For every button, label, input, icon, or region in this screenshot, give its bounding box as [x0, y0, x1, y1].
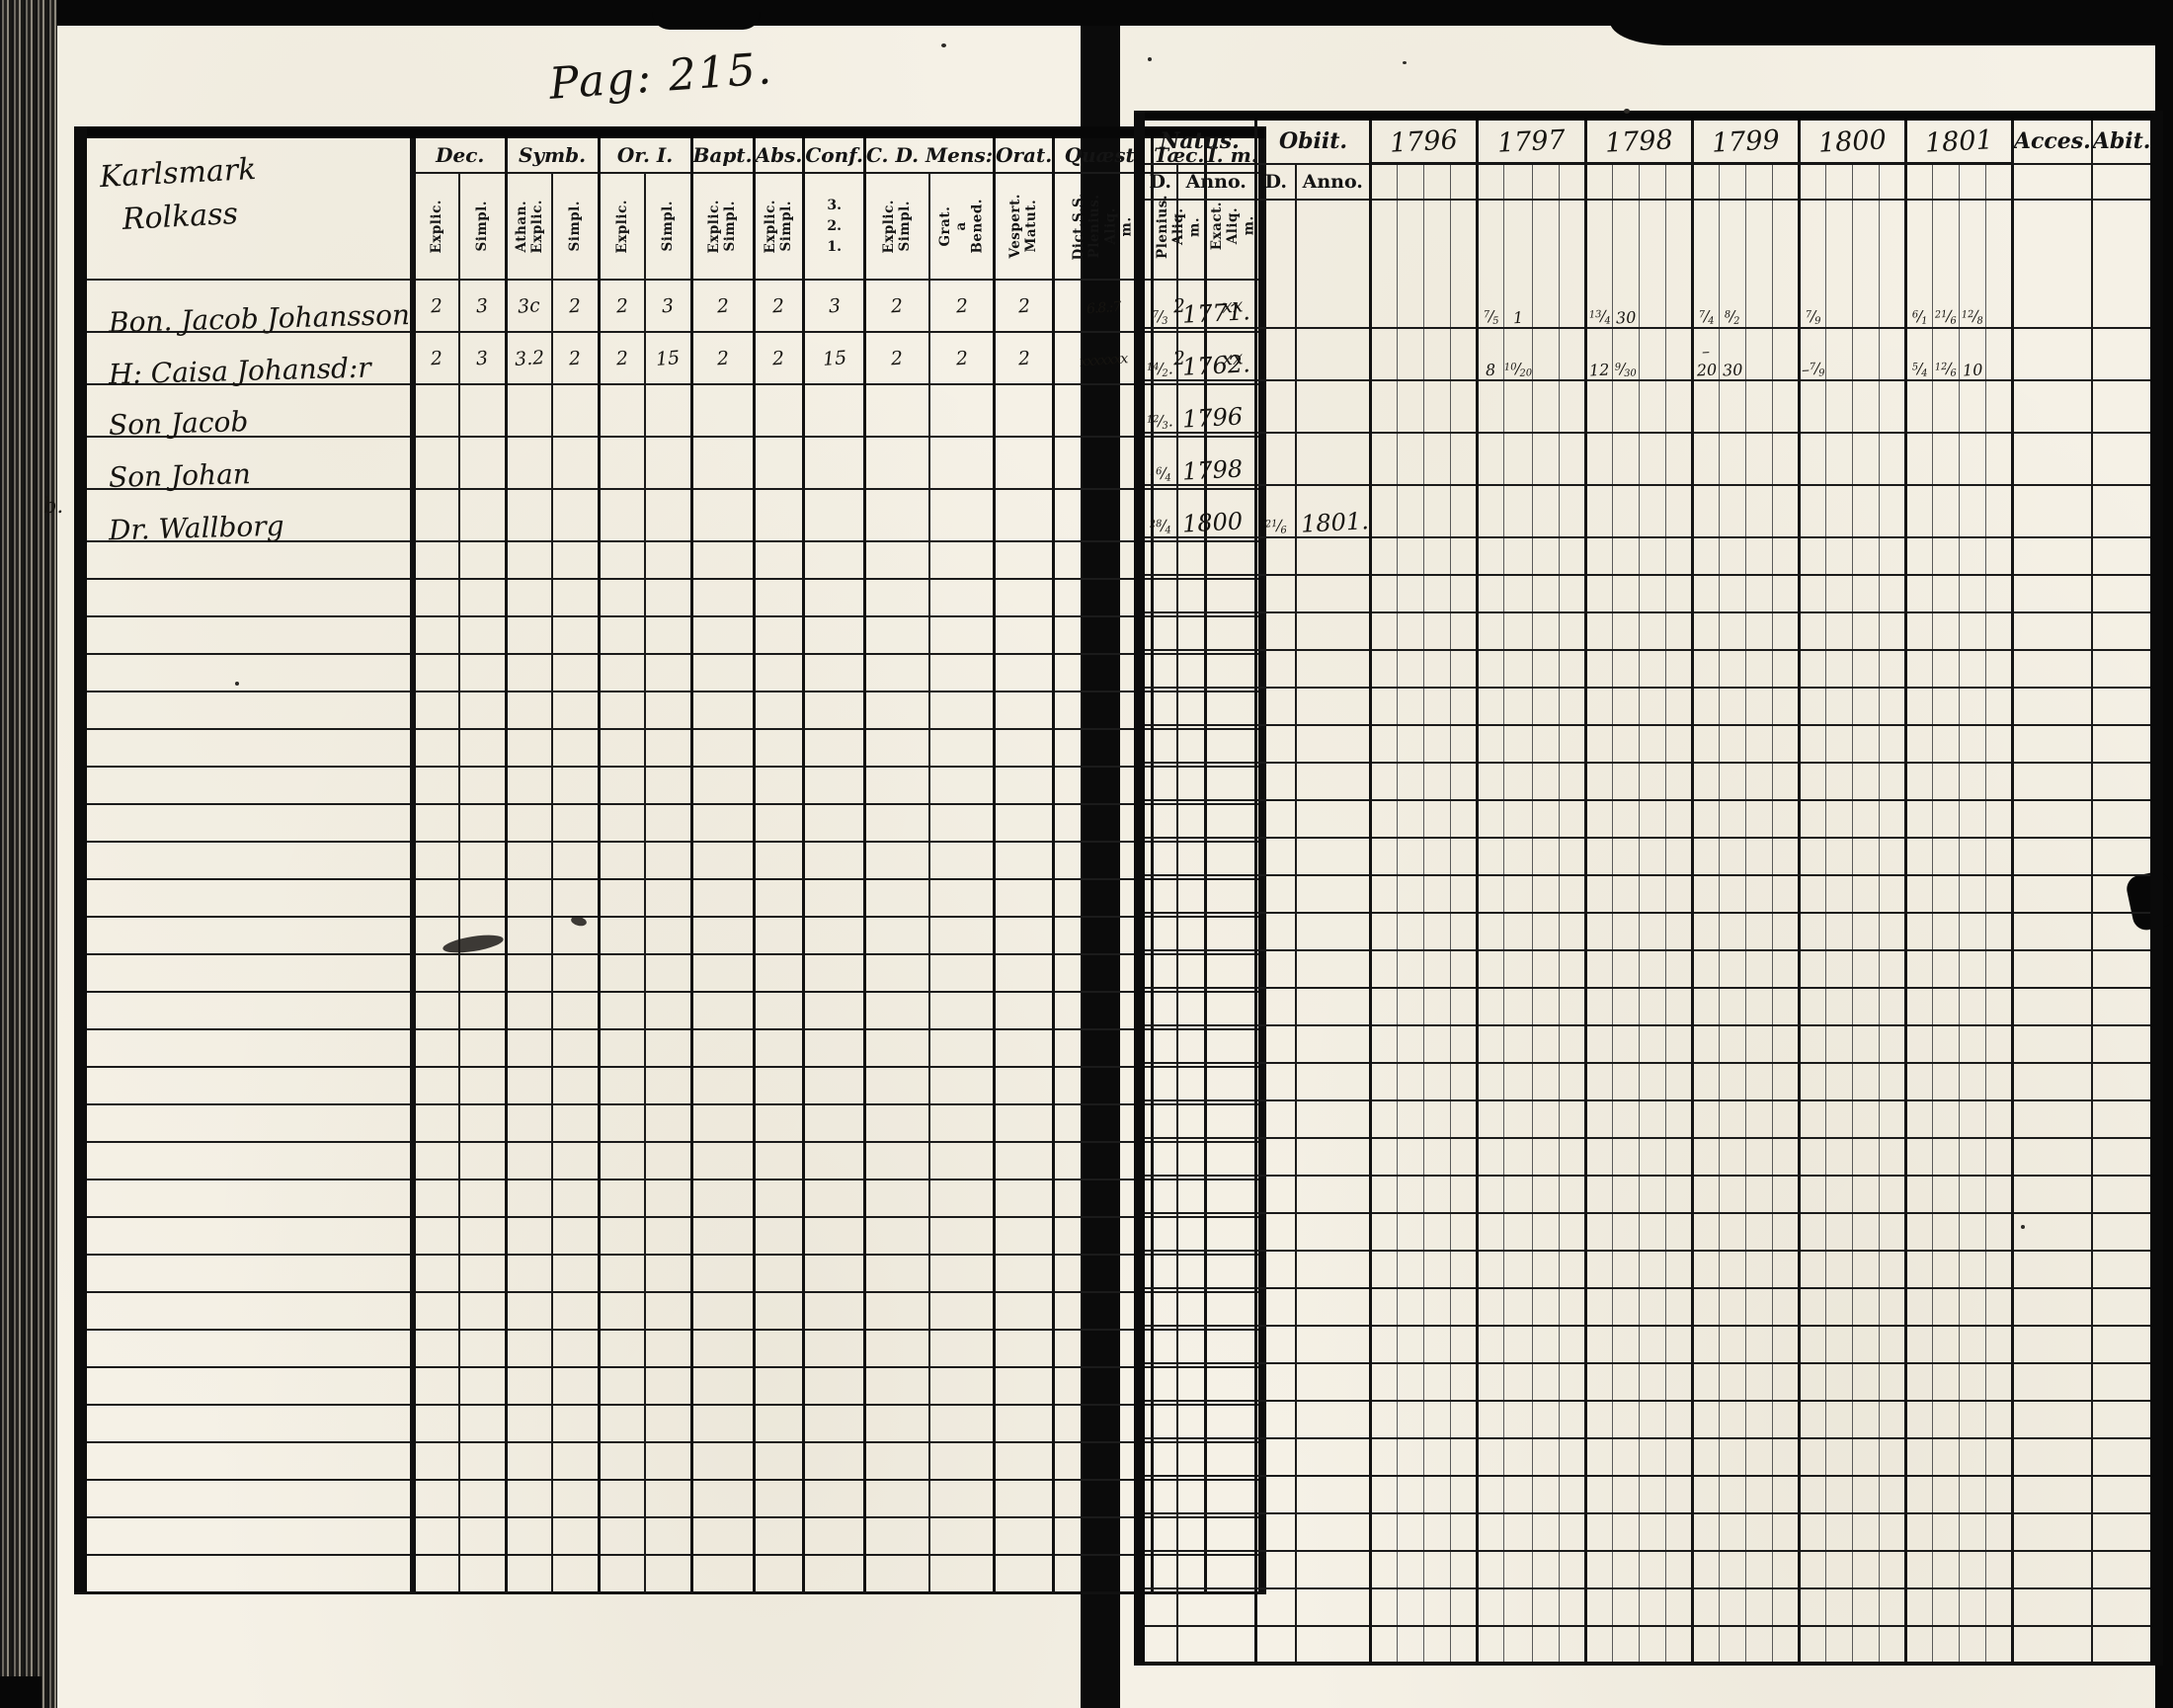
ledger-cell	[691, 437, 754, 489]
ledger-cell	[645, 1179, 691, 1217]
communion-mark-cell	[1585, 988, 1612, 1025]
communion-mark-cell	[1879, 988, 1905, 1025]
column-subheader: Explic. Simpl.	[754, 173, 804, 280]
ledger-cell	[599, 992, 645, 1029]
communion-mark-cell	[1852, 485, 1879, 537]
obiit-year-cell	[1296, 1176, 1371, 1213]
ledger-cell	[995, 842, 1054, 879]
ledger-cell	[552, 1029, 599, 1067]
ledger-row	[1140, 1213, 2157, 1251]
communion-mark-cell	[1532, 1213, 1559, 1251]
communion-mark-cell	[1959, 1438, 1985, 1476]
ledger-cell	[645, 1480, 691, 1517]
communion-mark-cell	[1852, 537, 1879, 575]
communion-mark-cell	[1959, 433, 1985, 485]
communion-mark-cell	[1959, 913, 1985, 950]
communion-mark-cell	[1504, 1100, 1533, 1138]
ledger-cell	[413, 879, 459, 917]
communion-mark-cell	[1451, 433, 1478, 485]
book-spine-edge	[0, 0, 57, 1708]
communion-mark-cell	[1532, 537, 1559, 575]
ledger-cell	[929, 992, 995, 1029]
person-name-cell	[81, 917, 414, 954]
year-tick-cell	[1852, 164, 1879, 200]
obiit-day-cell	[1256, 1326, 1296, 1363]
communion-mark-cell	[1772, 800, 1799, 838]
ledger-cell	[754, 879, 804, 917]
communion-mark-cell	[1424, 1100, 1451, 1138]
ledger-cell	[645, 541, 691, 579]
ledger-cell	[413, 729, 459, 767]
communion-mark-cell	[1799, 950, 1825, 988]
ledger-cell	[506, 1330, 552, 1367]
communion-mark-cell	[1959, 1588, 1985, 1626]
communion-mark-cell: 7⁄5	[1478, 200, 1504, 328]
acces-cell	[2012, 913, 2091, 950]
communion-mark-cell: 9⁄30	[1612, 328, 1639, 380]
communion-mark-cell	[1772, 1138, 1799, 1176]
person-name-cell: Son Johan	[81, 437, 414, 489]
communion-mark-cell	[1772, 838, 1799, 875]
ledger-cell	[506, 489, 552, 541]
person-name-cell	[81, 992, 414, 1029]
ledger-cell	[754, 691, 804, 729]
communion-mark-cell	[1719, 575, 1745, 612]
obiit-year-cell	[1296, 575, 1371, 612]
communion-mark-cell	[1932, 380, 1959, 433]
ledger-row	[81, 917, 1262, 954]
ledger-cell	[459, 489, 506, 541]
communion-mark-cell	[1692, 688, 1719, 725]
communion-mark-cell	[1585, 1213, 1612, 1251]
communion-mark-cell	[1905, 1363, 1932, 1401]
acces-cell	[2012, 763, 2091, 800]
ledger-cell	[645, 804, 691, 842]
communion-mark-cell	[1852, 380, 1879, 433]
communion-mark-cell	[1745, 1401, 1772, 1438]
communion-mark-cell	[1745, 1138, 1772, 1176]
communion-mark-cell	[1398, 433, 1424, 485]
communion-mark-cell	[1424, 1251, 1451, 1288]
communion-mark-cell	[1772, 1100, 1799, 1138]
ledger-cell	[506, 1405, 552, 1442]
communion-mark-cell	[1451, 1100, 1478, 1138]
ledger-cell	[804, 1367, 865, 1405]
communion-mark-cell	[1879, 1326, 1905, 1363]
ledger-cell	[754, 767, 804, 804]
ledger-cell	[645, 1104, 691, 1142]
ledger-cell	[645, 1292, 691, 1330]
communion-mark-cell	[1985, 433, 2012, 485]
communion-mark-cell	[1825, 800, 1852, 838]
abit-cell	[2092, 200, 2157, 328]
communion-mark-cell	[1719, 380, 1745, 433]
communion-mark-cell	[1639, 1513, 1665, 1551]
communion-mark-cell	[1719, 838, 1745, 875]
abit-cell	[2092, 485, 2157, 537]
communion-mark-cell: 7⁄4	[1692, 200, 1719, 328]
communion-mark-cell	[1504, 575, 1533, 612]
ledger-cell: 2	[995, 332, 1054, 384]
obiit-year-cell	[1296, 612, 1371, 650]
ledger-cell	[645, 1255, 691, 1292]
communion-mark-cell	[1879, 688, 1905, 725]
ledger-cell	[645, 654, 691, 691]
ledger-cell	[459, 992, 506, 1029]
ledger-cell	[929, 1292, 995, 1330]
natus-year-cell	[1177, 988, 1256, 1025]
obiit-day-cell	[1256, 800, 1296, 838]
communion-mark-cell	[1532, 1176, 1559, 1213]
communion-mark-cell	[1398, 1626, 1424, 1664]
communion-mark-cell	[1985, 838, 2012, 875]
obiit-day-cell	[1256, 1288, 1296, 1326]
communion-mark-cell	[1639, 1176, 1665, 1213]
communion-mark-cell	[1451, 763, 1478, 800]
ledger-cell	[599, 1330, 645, 1367]
communion-mark-cell	[1451, 380, 1478, 433]
communion-mark-cell	[1799, 1326, 1825, 1363]
communion-mark-cell	[1692, 763, 1719, 800]
ledger-cell: 2	[929, 280, 995, 332]
ledger-cell	[459, 767, 506, 804]
ledger-cell	[413, 842, 459, 879]
ledger-cell: 3.2	[506, 332, 552, 384]
ledger-cell	[599, 954, 645, 992]
communion-mark-cell	[1959, 1626, 1985, 1664]
communion-mark-cell	[1879, 537, 1905, 575]
communion-mark-cell	[1905, 575, 1932, 612]
obiit-year-cell	[1296, 838, 1371, 875]
ledger-cell	[552, 1330, 599, 1367]
acces-cell	[2012, 1626, 2091, 1664]
ledger-cell	[929, 1142, 995, 1179]
communion-mark-cell	[1879, 800, 1905, 838]
communion-mark-cell	[1504, 725, 1533, 763]
ledger-cell	[864, 729, 929, 767]
communion-mark-cell	[1745, 1363, 1772, 1401]
ledger-cell	[552, 541, 599, 579]
ledger-cell	[506, 767, 552, 804]
ledger-cell	[754, 842, 804, 879]
ink-speck	[235, 682, 239, 686]
ledger-cell	[864, 1555, 929, 1592]
ledger-cell	[929, 691, 995, 729]
communion-mark-cell	[1959, 688, 1985, 725]
communion-mark-cell	[1504, 1513, 1533, 1551]
communion-mark-cell	[1478, 1176, 1504, 1213]
ledger-cell	[413, 489, 459, 541]
obiit-year-cell	[1296, 1438, 1371, 1476]
abit-cell	[2092, 763, 2157, 800]
abit-cell	[2092, 1025, 2157, 1063]
communion-mark-cell	[1745, 875, 1772, 913]
communion-mark-cell	[1879, 875, 1905, 913]
obiit-year-cell	[1296, 950, 1371, 988]
ledger-cell	[413, 954, 459, 992]
communion-mark-cell	[1825, 1401, 1852, 1438]
communion-mark-cell	[1559, 612, 1585, 650]
communion-mark-cell	[1719, 1100, 1745, 1138]
communion-mark-cell	[1879, 1213, 1905, 1251]
ledger-cell: 2	[864, 332, 929, 384]
abit-cell	[2092, 1476, 2157, 1513]
communion-mark-cell	[1612, 688, 1639, 725]
abit-cell	[2092, 875, 2157, 913]
abit-cell	[2092, 1176, 2157, 1213]
person-name-cell: Bon. Jacob Johansson	[81, 280, 414, 332]
ledger-cell	[599, 1367, 645, 1405]
ledger-cell	[929, 1179, 995, 1217]
abit-cell	[2092, 1438, 2157, 1476]
communion-mark-cell	[1799, 875, 1825, 913]
column-subheader: Explic. Simpl.	[864, 173, 929, 280]
communion-mark-cell	[1424, 800, 1451, 838]
communion-mark-cell	[1799, 1025, 1825, 1063]
ledger-cell	[804, 541, 865, 579]
ledger-row: 12⁄3.1796	[1140, 380, 2157, 433]
acces-cell	[2012, 725, 2091, 763]
abit-cell	[2092, 1588, 2157, 1626]
acces-cell	[2012, 1213, 2091, 1251]
ledger-cell	[995, 804, 1054, 842]
ledger-row	[81, 1292, 1262, 1330]
ledger-cell	[864, 1367, 929, 1405]
communion-mark-cell	[1985, 1176, 2012, 1213]
communion-mark-cell: 10	[1959, 328, 1985, 380]
communion-mark-cell	[1959, 725, 1985, 763]
communion-mark-cell	[1504, 485, 1533, 537]
communion-mark-cell	[1639, 537, 1665, 575]
natus-year-cell	[1177, 1025, 1256, 1063]
communion-mark-cell	[1398, 612, 1424, 650]
natus-day-cell	[1140, 1401, 1177, 1438]
communion-mark-cell	[1612, 575, 1639, 612]
acces-cell	[2012, 380, 2091, 433]
ledger-cell	[864, 691, 929, 729]
communion-mark-cell	[1451, 1401, 1478, 1438]
household-name-header: KarlsmarkRolkass	[81, 132, 414, 280]
ledger-cell	[804, 917, 865, 954]
communion-mark-cell	[1478, 763, 1504, 800]
year-tick-cell	[1398, 164, 1424, 200]
communion-mark-cell	[1905, 950, 1932, 988]
ledger-cell	[599, 1029, 645, 1067]
communion-mark-cell: 21⁄6	[1932, 200, 1959, 328]
ledger-cell	[645, 1367, 691, 1405]
communion-mark-cell	[1692, 433, 1719, 485]
obiit-year-cell	[1296, 688, 1371, 725]
ledger-cell	[929, 1367, 995, 1405]
ledger-row	[81, 879, 1262, 917]
ledger-cell	[754, 1405, 804, 1442]
obiit-year-cell: 1801.	[1296, 485, 1371, 537]
ledger-cell	[804, 616, 865, 654]
communion-mark-cell	[1398, 1100, 1424, 1138]
communion-mark-cell	[1665, 1551, 1692, 1588]
communion-mark-cell	[1612, 1025, 1639, 1063]
ledger-cell	[459, 879, 506, 917]
communion-mark-cell	[1959, 875, 1985, 913]
obiit-day-cell	[1256, 1025, 1296, 1063]
communion-mark-cell	[1692, 800, 1719, 838]
communion-mark-cell	[1799, 650, 1825, 688]
communion-mark-cell	[1398, 875, 1424, 913]
communion-mark-cell	[1504, 650, 1533, 688]
abit-cell	[2092, 1626, 2157, 1664]
ledger-row	[1140, 838, 2157, 875]
communion-mark-cell	[1852, 875, 1879, 913]
ledger-row	[81, 1367, 1262, 1405]
communion-mark-cell	[1959, 650, 1985, 688]
communion-mark-cell	[1451, 1326, 1478, 1363]
communion-mark-cell	[1905, 875, 1932, 913]
communion-mark-cell	[1799, 913, 1825, 950]
ledger-cell	[599, 541, 645, 579]
ledger-cell	[506, 541, 552, 579]
ledger-cell	[929, 1104, 995, 1142]
ledger-cell	[864, 1517, 929, 1555]
communion-mark-cell	[1799, 1063, 1825, 1100]
natus-year-cell	[1177, 763, 1256, 800]
ledger-row	[81, 729, 1262, 767]
acces-cell	[2012, 1100, 2091, 1138]
communion-mark-cell	[1905, 1513, 1932, 1551]
ledger-cell	[552, 1067, 599, 1104]
communion-mark-cell	[1959, 950, 1985, 988]
communion-mark-cell	[1665, 485, 1692, 537]
ledger-cell	[552, 654, 599, 691]
communion-mark-cell	[1825, 1100, 1852, 1138]
column-subheader: Explic.	[599, 173, 645, 280]
ledger-row	[1140, 875, 2157, 913]
communion-mark-cell	[1639, 875, 1665, 913]
ledger-cell	[552, 1442, 599, 1480]
communion-mark-cell	[1905, 1476, 1932, 1513]
ledger-row	[1140, 913, 2157, 950]
ledger-cell	[864, 1442, 929, 1480]
natus-day-cell	[1140, 1551, 1177, 1588]
ledger-cell	[506, 954, 552, 992]
communion-mark-cell	[1825, 1363, 1852, 1401]
obiit-day-cell	[1256, 1513, 1296, 1551]
communion-mark-cell	[1398, 1213, 1424, 1251]
ledger-row	[1140, 688, 2157, 725]
ledger-cell	[691, 616, 754, 654]
communion-mark-cell	[1371, 1176, 1398, 1213]
communion-mark-cell	[1719, 688, 1745, 725]
communion-mark-cell	[1745, 575, 1772, 612]
communion-mark-cell	[1424, 913, 1451, 950]
natus-day-cell	[1140, 650, 1177, 688]
communion-mark-cell	[1559, 1025, 1585, 1063]
ledger-cell	[995, 1517, 1054, 1555]
ledger-row	[1140, 1401, 2157, 1438]
ledger-cell	[459, 1442, 506, 1480]
communion-mark-cell	[1532, 763, 1559, 800]
natus-day-cell	[1140, 1513, 1177, 1551]
communion-mark-cell	[1879, 1288, 1905, 1326]
ledger-cell	[804, 1217, 865, 1255]
obiit-year-cell	[1296, 1513, 1371, 1551]
ledger-cell	[599, 804, 645, 842]
ledger-cell	[645, 1517, 691, 1555]
ledger-cell	[599, 1405, 645, 1442]
communion-mark-cell	[1719, 1401, 1745, 1438]
communion-mark-cell	[1959, 838, 1985, 875]
ledger-row	[81, 1029, 1262, 1067]
year-tick-cell	[1371, 164, 1398, 200]
communion-mark-cell	[1585, 1025, 1612, 1063]
ledger-cell	[995, 579, 1054, 616]
communion-mark-cell	[1745, 200, 1772, 328]
ledger-cell	[995, 616, 1054, 654]
obiit-year-cell	[1296, 1138, 1371, 1176]
natus-year-cell: 1771.	[1177, 200, 1256, 328]
communion-mark-cell	[1719, 1251, 1745, 1288]
communion-mark-cell	[1985, 725, 2012, 763]
ledger-cell	[552, 579, 599, 616]
communion-mark-cell	[1932, 1251, 1959, 1288]
ledger-cell: 3	[459, 280, 506, 332]
natus-day-cell: 14⁄2.	[1140, 328, 1177, 380]
communion-mark-cell	[1932, 875, 1959, 913]
communion-mark-cell	[1451, 838, 1478, 875]
ledger-cell	[754, 654, 804, 691]
communion-mark-cell	[1424, 1138, 1451, 1176]
communion-mark-cell	[1585, 537, 1612, 575]
natus-year-cell	[1177, 1251, 1256, 1288]
ledger-cell	[864, 767, 929, 804]
communion-mark-cell	[1424, 1626, 1451, 1664]
communion-mark-cell	[1879, 1476, 1905, 1513]
communion-mark-cell	[1585, 763, 1612, 800]
person-name-cell	[81, 1255, 414, 1292]
ledger-row: 14⁄2.1762.810⁄20129⁄30–2030–7⁄95⁄412⁄610	[1140, 328, 2157, 380]
ledger-cell	[804, 579, 865, 616]
communion-mark-cell	[1905, 433, 1932, 485]
communion-mark-cell	[1612, 1513, 1639, 1551]
ledger-cell	[413, 384, 459, 437]
communion-mark-cell	[1852, 1438, 1879, 1476]
ledger-cell	[599, 1517, 645, 1555]
ledger-cell	[929, 1517, 995, 1555]
communion-mark-cell	[1665, 800, 1692, 838]
year-header: 1797	[1478, 116, 1586, 164]
communion-mark-cell	[1639, 1588, 1665, 1626]
communion-mark-cell	[1745, 1438, 1772, 1476]
communion-mark-cell	[1504, 612, 1533, 650]
communion-mark-cell	[1398, 1476, 1424, 1513]
ledger-cell	[995, 654, 1054, 691]
communion-mark-cell	[1478, 433, 1504, 485]
acces-cell	[2012, 485, 2091, 537]
ledger-row	[1140, 988, 2157, 1025]
communion-mark-cell	[1959, 800, 1985, 838]
communion-mark-cell	[1424, 1025, 1451, 1063]
communion-mark-cell	[1478, 1626, 1504, 1664]
ledger-cell	[754, 1067, 804, 1104]
ledger-cell	[804, 1142, 865, 1179]
communion-mark-cell	[1932, 1438, 1959, 1476]
ledger-cell	[413, 1517, 459, 1555]
communion-mark-cell	[1879, 485, 1905, 537]
communion-mark-cell	[1371, 200, 1398, 328]
abit-cell	[2092, 688, 2157, 725]
communion-mark-cell	[1398, 838, 1424, 875]
ledger-cell	[552, 767, 599, 804]
ledger-cell	[506, 1367, 552, 1405]
